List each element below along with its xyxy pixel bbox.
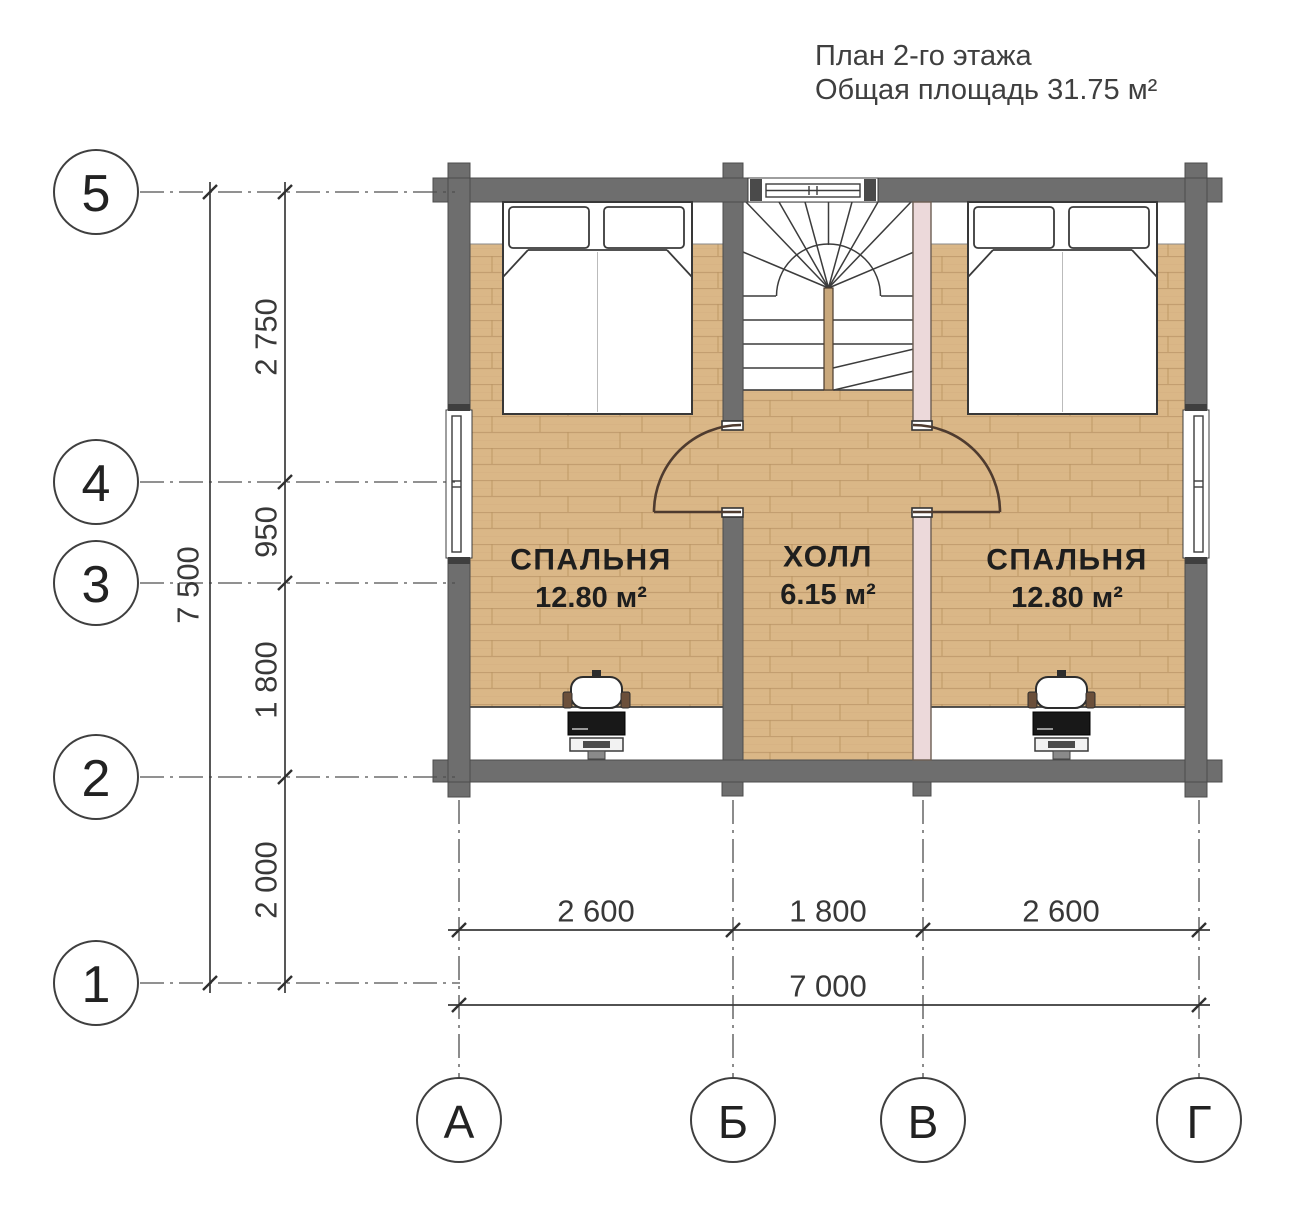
door-threshold-right — [913, 430, 931, 508]
dim-value-2600-right: 2 600 — [1022, 894, 1100, 929]
room-name-bedroom-left: СПАЛЬНЯ — [510, 544, 672, 577]
log-stub-bottom-right-out — [1207, 760, 1222, 782]
plan-title: План 2-го этажа — [815, 40, 1033, 72]
grid-label-col-v: В — [908, 1096, 939, 1148]
dimensions-vertical: 2 750 950 1 800 2 000 7 500 — [171, 182, 293, 993]
grid-label-col-g: Г — [1187, 1096, 1212, 1148]
window-right-cap-bottom — [1185, 557, 1207, 564]
dim-value-1800-v: 1 800 — [249, 641, 284, 719]
floor-plan-page: План 2-го этажа Общая площадь 31.75 м² — [0, 0, 1300, 1228]
title-block: План 2-го этажа Общая площадь 31.75 м² — [815, 40, 1158, 106]
bed-right — [968, 202, 1157, 414]
window-left-frame — [452, 416, 461, 552]
log-stub-top-right-up — [1185, 163, 1207, 178]
dim-value-2750: 2 750 — [249, 298, 284, 376]
window-right-cap-top — [1185, 404, 1207, 411]
wall-partition-right-lower — [913, 517, 931, 760]
room-name-bedroom-right: СПАЛЬНЯ — [986, 544, 1148, 577]
grid-label-row-4: 4 — [82, 455, 111, 513]
grid-label-row-2: 2 — [82, 750, 111, 808]
wall-exterior-bottom — [448, 760, 1207, 782]
dim-value-2600-left: 2 600 — [557, 894, 635, 929]
room-area-bedroom-left: 12.80 м² — [535, 582, 647, 614]
log-stub-bottom-left-out — [433, 760, 448, 782]
window-left-cap-bottom — [448, 557, 470, 564]
window-right-frame — [1194, 416, 1203, 552]
dim-value-7000: 7 000 — [789, 969, 867, 1004]
grid-label-row-3: 3 — [82, 556, 111, 614]
dim-value-950: 950 — [249, 506, 284, 558]
window-left-cap-top — [448, 404, 470, 411]
dim-value-2000: 2 000 — [249, 841, 284, 919]
room-area-bedroom-right: 12.80 м² — [1011, 582, 1123, 614]
plan-total-area: Общая площадь 31.75 м² — [815, 74, 1158, 106]
door-threshold-left — [723, 430, 743, 508]
log-stub-top-axis-b — [723, 163, 743, 178]
staircase — [743, 202, 914, 390]
room-name-hall: ХОЛЛ — [783, 541, 873, 574]
window-top-jamb-right — [864, 179, 876, 201]
desk-right — [1028, 670, 1095, 759]
dimensions-horizontal: 2 600 1 800 2 600 7 000 — [448, 894, 1210, 1013]
wall-partition-right-upper — [913, 202, 931, 421]
wall-interior-left-lower — [723, 517, 743, 760]
log-stub-top-left-out — [433, 178, 448, 202]
dim-value-1800-h: 1 800 — [789, 894, 867, 929]
window-top-jamb-left — [750, 179, 762, 201]
wall-interior-left-upper — [723, 202, 743, 421]
grid-label-col-a: А — [444, 1096, 475, 1148]
log-stub-top-left-up — [448, 163, 470, 178]
log-stub-bottom-axis-b — [722, 782, 743, 796]
log-stub-bottom-left-down — [448, 782, 470, 797]
grid-label-col-b: Б — [718, 1096, 748, 1148]
wood-floor-hall — [743, 390, 913, 760]
log-stub-bottom-axis-v — [913, 782, 931, 796]
desk-left — [563, 670, 630, 759]
log-stub-top-right-out — [1207, 178, 1222, 202]
dim-value-7500: 7 500 — [171, 546, 206, 624]
bed-left — [503, 202, 692, 414]
room-area-hall: 6.15 м² — [780, 579, 876, 611]
log-stub-bottom-right-down — [1185, 782, 1207, 797]
grid-label-row-1: 1 — [82, 956, 111, 1014]
grid-label-row-5: 5 — [82, 165, 111, 223]
stair-center-divider — [824, 288, 833, 390]
floor-plan-drawing: План 2-го этажа Общая площадь 31.75 м² — [0, 0, 1300, 1228]
